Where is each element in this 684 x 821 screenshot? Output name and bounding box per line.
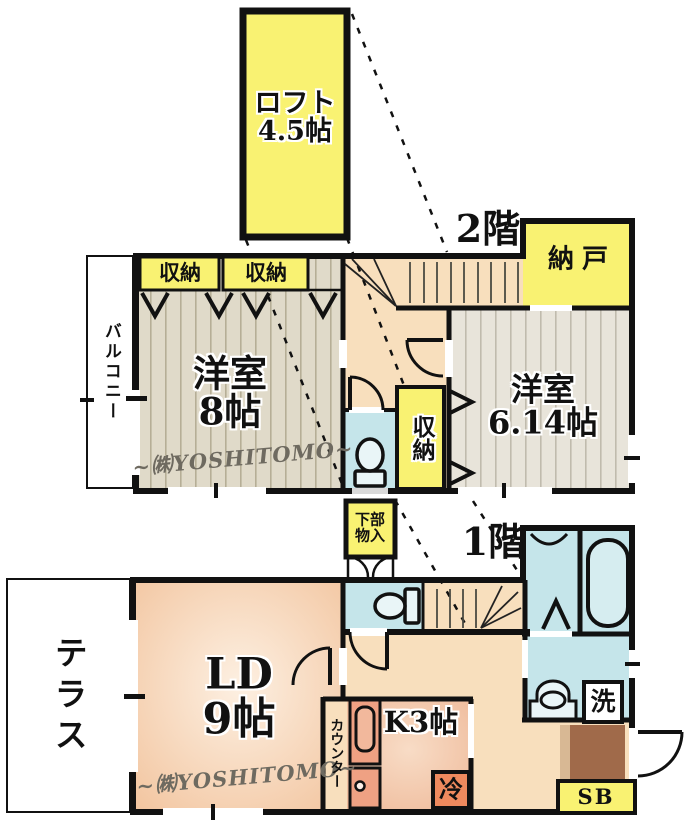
counter-label: カウンター — [329, 718, 344, 788]
room614-label: 洋室6.14帖 — [488, 374, 598, 441]
under-stair-storage-label: 下部物入 — [355, 512, 385, 543]
room8-label: 洋室8帖 — [193, 355, 267, 432]
terrace-label: テラス — [51, 636, 85, 759]
floor1-title: 1階 — [462, 522, 526, 562]
balcony-label: バルコニー — [101, 322, 119, 422]
closet2-label: 収納 — [245, 262, 287, 284]
under-stair-storage-doors — [348, 557, 393, 577]
closet-mid-label: 収納 — [409, 415, 433, 461]
toilet2-window — [352, 488, 388, 494]
kitchen-label: K3帖 — [384, 707, 458, 737]
closet1-label: 収納 — [159, 262, 201, 284]
fridge-label: 冷 — [439, 778, 463, 803]
bathtub-icon — [588, 540, 628, 626]
toilet1-icon — [375, 589, 419, 623]
washer-label: 洗 — [590, 689, 615, 715]
entry-mat — [570, 725, 625, 785]
ld-label: LD9帖 — [203, 652, 276, 741]
toilet2-icon — [355, 439, 385, 486]
loft-label: ロフト4.5帖 — [255, 90, 336, 146]
shoebox-label: SB — [578, 786, 615, 808]
entry-step — [560, 725, 570, 785]
floor2-title: 2階 — [456, 209, 520, 249]
storeroom-label: 納戸 — [540, 246, 616, 273]
floor-plan: ロフト4.5帖 2階 納戸 収納 収納 バルコニー 洋室8帖 洋室6.14帖 収… — [0, 0, 684, 821]
